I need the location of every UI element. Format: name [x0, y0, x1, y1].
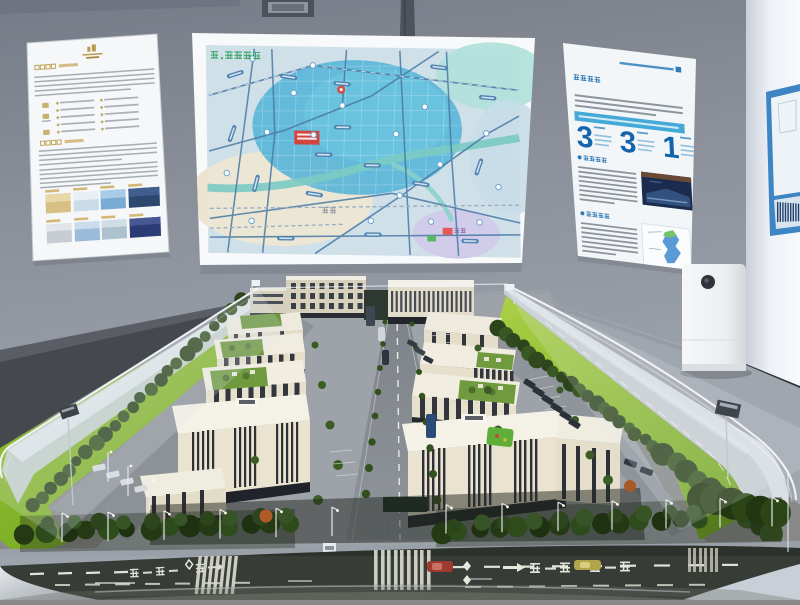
svg-text:3: 3	[576, 120, 594, 155]
svg-text:1: 1	[662, 131, 680, 166]
svg-text:3: 3	[619, 125, 637, 160]
